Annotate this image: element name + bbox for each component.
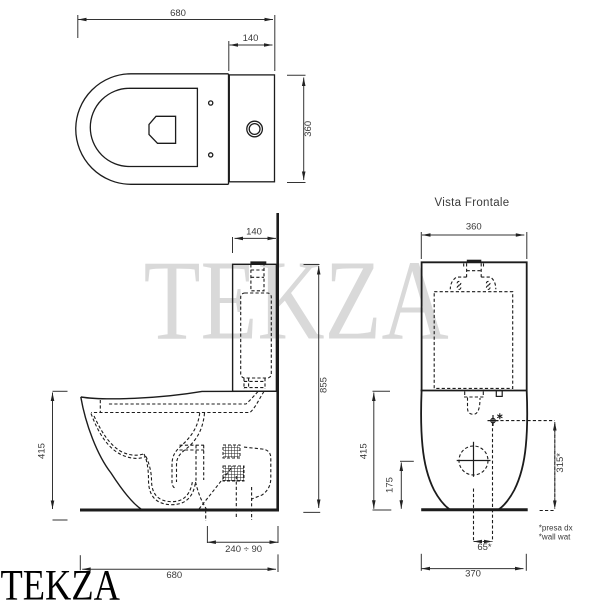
svg-text:65*: 65* [477,542,492,553]
svg-text:Vista Frontale: Vista Frontale [435,197,510,209]
svg-text:855: 855 [318,377,329,393]
svg-text:680: 680 [170,8,186,19]
svg-text:415: 415 [358,443,369,459]
svg-text:TEKZA: TEKZA [1,561,121,600]
svg-text:360: 360 [303,121,314,137]
svg-text:140: 140 [243,33,259,44]
svg-text:360: 360 [466,222,482,233]
svg-text:680: 680 [166,570,182,581]
svg-text:315*: 315* [555,453,566,473]
svg-text:*wall wat: *wall wat [539,533,571,542]
svg-text:415: 415 [37,443,48,459]
svg-text:175: 175 [385,477,396,493]
svg-text:240 ÷ 90: 240 ÷ 90 [225,544,262,555]
svg-text:TEKZA: TEKZA [144,237,449,364]
svg-text:370: 370 [465,569,481,580]
svg-text:*presa dx: *presa dx [539,524,573,533]
svg-text:140: 140 [246,227,262,238]
